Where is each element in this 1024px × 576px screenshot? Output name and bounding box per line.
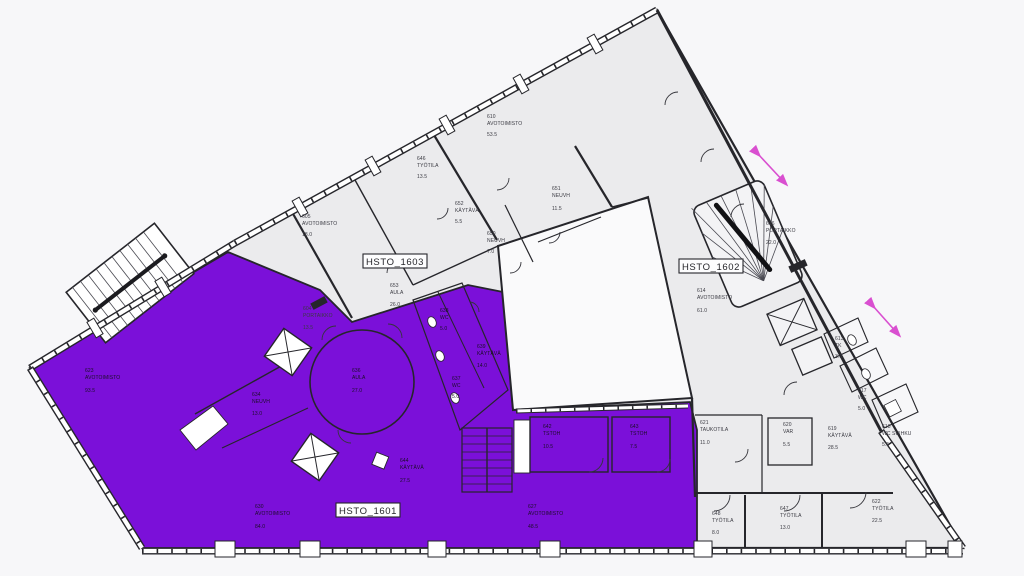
room-id: 653 xyxy=(390,283,399,289)
room-name: WC xyxy=(452,383,461,389)
room-area: 13.0 xyxy=(780,525,790,531)
room-area: 13.0 xyxy=(252,411,262,417)
room-id: 622 xyxy=(872,499,881,505)
room-id: 620 xyxy=(783,422,792,428)
room-area: 18.0 xyxy=(302,232,312,238)
room-id: 610 xyxy=(487,114,496,120)
room-area: 5.5 xyxy=(783,442,790,448)
room-name: TYÖTILA xyxy=(780,512,802,519)
room-name: AULA xyxy=(390,290,404,296)
room-id: 634 xyxy=(252,392,261,398)
room-id: 627 xyxy=(528,504,537,510)
room-area: 13.5 xyxy=(417,174,427,180)
room-area: 5.0 xyxy=(440,326,447,332)
room-id: 648 xyxy=(712,511,721,517)
room-area: 5.5 xyxy=(882,442,889,448)
room-name: TSTOH xyxy=(543,431,561,437)
room-name: WC SUIHKU xyxy=(882,431,912,437)
room-id: 623 xyxy=(85,368,94,374)
room-area: 22.5 xyxy=(872,518,882,524)
room-area: 53.5 xyxy=(487,132,497,138)
room-id: 616 xyxy=(766,221,775,227)
room-area: 28.5 xyxy=(828,445,838,451)
room-name: TYÖTILA xyxy=(872,505,894,512)
room-area: 8.0 xyxy=(712,530,719,536)
room-name: AVOTOIMISTO xyxy=(487,121,522,127)
room-area: 5.0 xyxy=(452,394,459,400)
room-id: 617 xyxy=(858,388,867,394)
room-area: 14.0 xyxy=(477,363,487,369)
floor-plan-page: { "plan": { "units": [ {"label": "HSTO_1… xyxy=(0,0,1024,576)
room-area: 10.5 xyxy=(543,444,553,450)
room-name: KÄYTÄVÄ xyxy=(400,464,424,471)
room-name: PORTAIKKO xyxy=(766,228,796,234)
floor-plan-drawing: HSTO_1603 HSTO_1602 HSTO_1601 605 AVOTOI… xyxy=(0,0,1024,576)
room-area: 93.5 xyxy=(85,388,95,394)
room-id: 636 xyxy=(352,368,361,374)
room-name: KÄYTÄVÄ xyxy=(455,207,479,214)
shaft-white xyxy=(514,420,530,473)
room-name: AVOTOIMISTO xyxy=(697,295,732,301)
room-id: 652 xyxy=(455,201,464,207)
room-name: AVOTOIMISTO xyxy=(85,375,120,381)
room-area: 27.5 xyxy=(400,478,410,484)
room-id: 605 xyxy=(302,214,311,220)
room-area: 7.5 xyxy=(630,444,637,450)
room-id: 613 xyxy=(835,336,844,342)
room-area: 3.0 xyxy=(835,354,842,360)
room-name: TSTOH xyxy=(630,431,648,437)
room-name: KÄYTÄVÄ xyxy=(828,432,852,439)
room-area: 11.0 xyxy=(700,440,710,446)
room-area: 26.0 xyxy=(390,302,400,308)
room-id: 643 xyxy=(630,424,639,430)
unit-1601-text: HSTO_1601 xyxy=(339,506,397,517)
unit-label-1602: HSTO_1602 xyxy=(679,259,743,273)
room-id: 650 xyxy=(487,231,496,237)
room-area: 48.5 xyxy=(528,524,538,530)
unit-label-1601: HSTO_1601 xyxy=(336,503,400,517)
room-id: 621 xyxy=(700,420,709,426)
unit-1602-text: HSTO_1602 xyxy=(682,262,740,273)
room-id: 604 xyxy=(303,306,312,312)
room-id: 618 xyxy=(882,424,891,430)
room-name: TAUKOTILA xyxy=(700,427,729,433)
room-name: AVOTOIMISTO xyxy=(255,511,290,517)
room-name: AVOTOIMISTO xyxy=(528,511,563,517)
room-area: 13.5 xyxy=(303,325,313,331)
room-area: 27.0 xyxy=(352,388,362,394)
room-id: 614 xyxy=(697,288,706,294)
room-name: TYÖTILA xyxy=(417,162,439,169)
room-area: 7.0 xyxy=(487,249,494,255)
room-area: 61.0 xyxy=(697,308,707,314)
room-name: VAR xyxy=(783,429,793,435)
unit-label-1603: HSTO_1603 xyxy=(363,254,427,268)
room-id: 642 xyxy=(543,424,552,430)
room-name: WC xyxy=(440,315,449,321)
room-id: 619 xyxy=(828,426,837,432)
room-id: 637 xyxy=(452,376,461,382)
room-area: 22.0 xyxy=(766,240,776,246)
room-name: TYÖTILA xyxy=(712,517,734,524)
room-name: KÄYTÄVÄ xyxy=(477,350,501,357)
room-name: NEUVH xyxy=(252,399,270,405)
room-name: AULA xyxy=(352,375,366,381)
room-id: 647 xyxy=(780,506,789,512)
room-name: TK xyxy=(835,343,842,349)
room-area: 84.0 xyxy=(255,524,265,530)
room-id: 646 xyxy=(417,156,426,162)
room-name: NEUVH xyxy=(487,238,505,244)
room-id: 639 xyxy=(477,344,486,350)
room-name: AVOTOIMISTO xyxy=(302,221,337,227)
room-area: 5.0 xyxy=(858,406,865,412)
unit-1603-text: HSTO_1603 xyxy=(366,257,424,268)
room-id: 630 xyxy=(255,504,264,510)
room-name: WC xyxy=(858,395,867,401)
room-area: 11.5 xyxy=(552,206,562,212)
room-name: NEUVH xyxy=(552,193,570,199)
room-id: 651 xyxy=(552,186,561,192)
room-id: 644 xyxy=(400,458,409,464)
room-id: 638 xyxy=(440,308,449,314)
room-name: PORTAIKKO xyxy=(303,313,333,319)
room-area: 5.5 xyxy=(455,219,462,225)
